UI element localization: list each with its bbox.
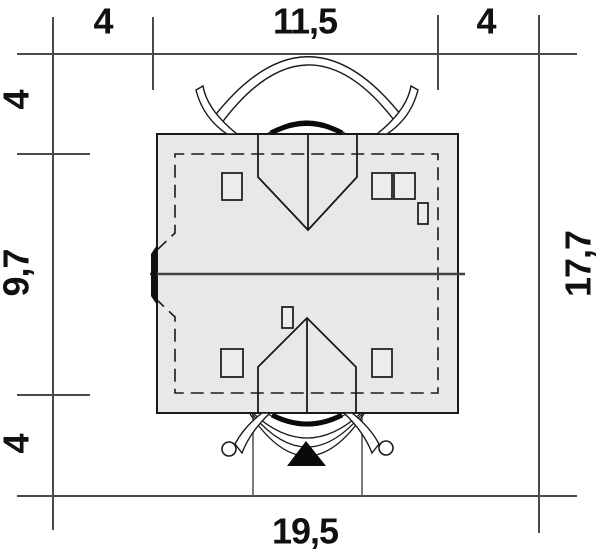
plant-bud-bottom-right [379,441,393,455]
plot-plan-page: 4 11,5 4 4 9,7 4 17,7 19,5 [0,0,607,554]
dim-label-bottom-total: 19,5 [272,511,339,552]
canopy-arc-top-thick [271,124,342,134]
entrance-step-arc-2 [252,414,362,447]
roof-window-top-right-2 [394,173,415,199]
roof-window-bottom-right [372,349,392,377]
chimney-left-wall [151,245,157,305]
vent-chimney-center [282,307,293,328]
dim-label-right-total: 17,7 [558,231,599,297]
house [150,134,465,413]
roof-window-top-right-1 [372,173,392,199]
vent-chimney-top-right [418,203,428,224]
tree-arc-band-top [213,57,401,124]
dim-label-left-top: 4 [0,90,37,110]
dim-label-left-bottom: 4 [0,434,37,454]
canopy-arc-bottom-thick [272,415,342,424]
roof-window-bottom-left [221,349,243,377]
roof-window-top-left [222,173,242,200]
dim-label-top-center: 11,5 [273,1,338,42]
dim-label-left-middle: 9,7 [0,249,37,296]
landscaping-bottom [222,413,393,466]
plant-bud-bottom-left [222,442,236,456]
dim-label-top-right: 4 [476,1,496,42]
dim-label-top-left: 4 [93,1,113,42]
plot-plan-drawing: 4 11,5 4 4 9,7 4 17,7 19,5 [0,0,607,554]
landscaping-top [196,57,418,134]
